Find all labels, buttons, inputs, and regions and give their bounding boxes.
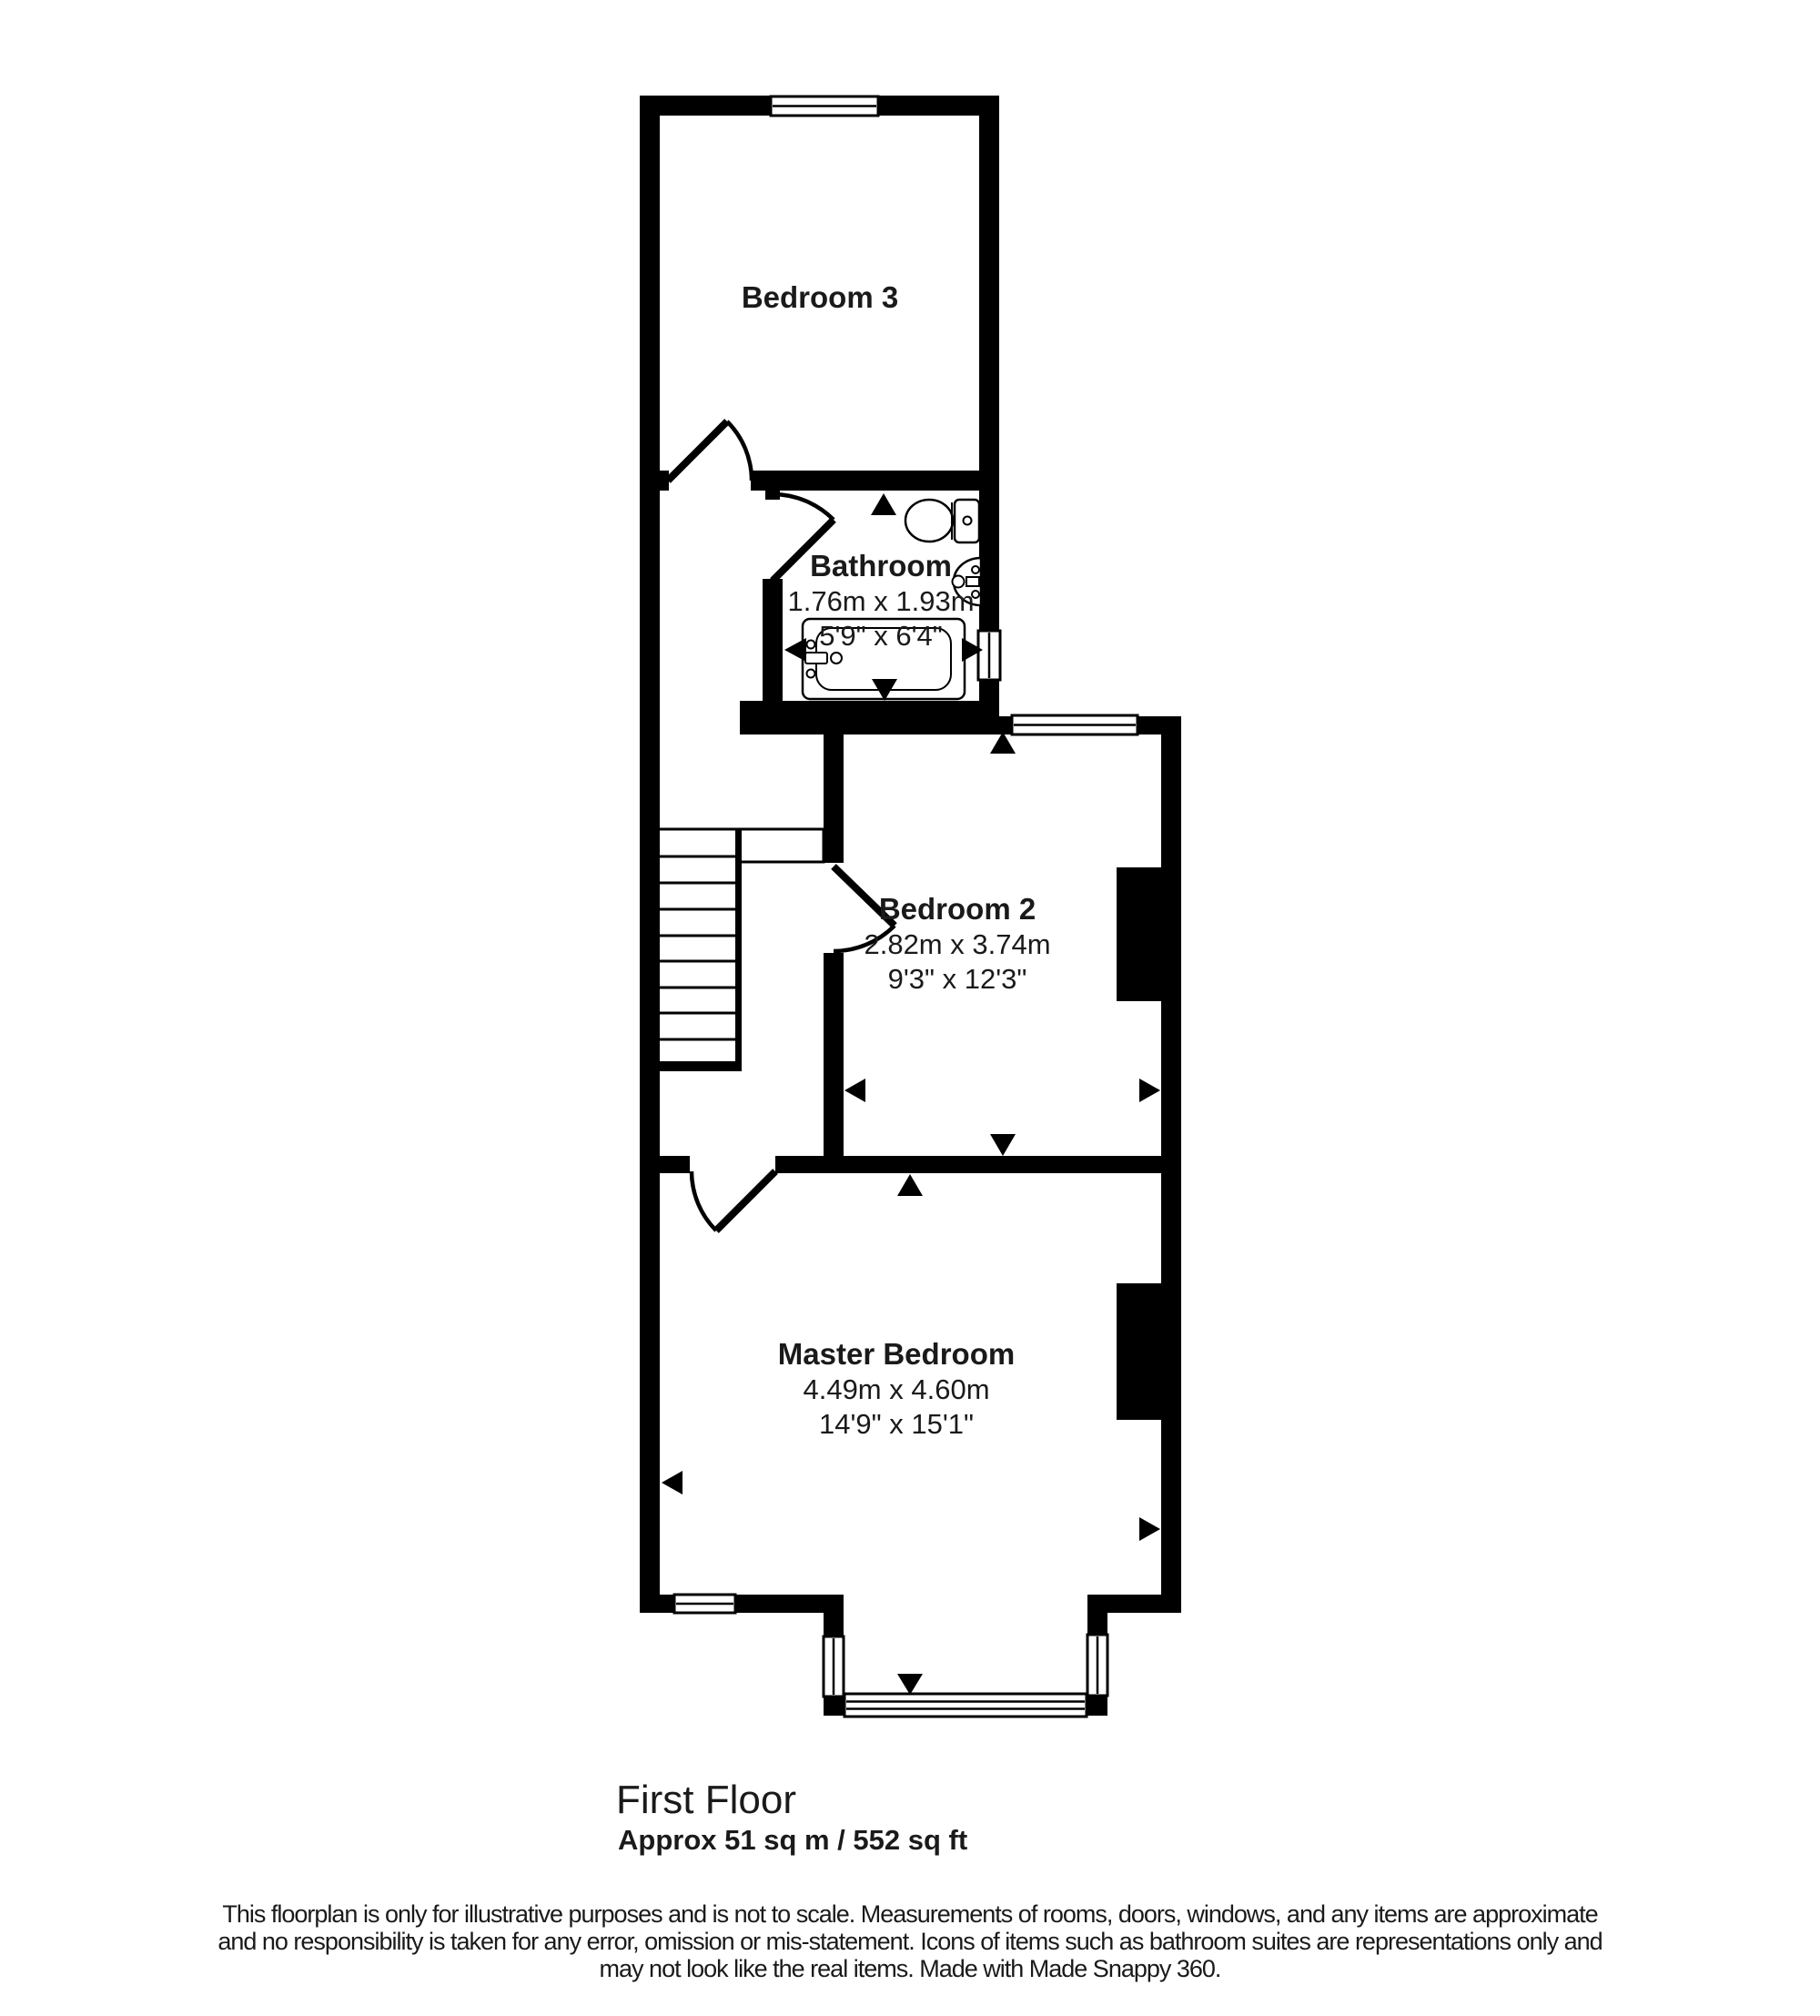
arrow-down-icon <box>897 1674 923 1695</box>
arrow-left-icon <box>844 1079 865 1102</box>
disclaimer-line-3: may not look like the real items. Made w… <box>600 1955 1221 1982</box>
arrow-right-icon <box>1139 1517 1160 1541</box>
bedroom2-dim-imperial: 9'3" x 12'3" <box>888 963 1027 995</box>
arrow-left-icon <box>662 1471 682 1494</box>
master-bedroom-label: Master Bedroom <box>778 1337 1015 1371</box>
arrow-up-icon <box>897 1174 923 1196</box>
disclaimer-line-1: This floorplan is only for illustrative … <box>222 1900 1597 1928</box>
bedroom3-label: Bedroom 3 <box>742 280 898 314</box>
chimney-breast <box>1117 1283 1161 1420</box>
bathroom-dim-imperial: 5'9" x 6'4" <box>819 620 943 652</box>
stair-landing-step <box>738 829 824 862</box>
wall-segment <box>763 579 783 706</box>
wall-segment <box>824 953 844 1156</box>
master-bedroom-dim-metric: 4.49m x 4.60m <box>803 1373 989 1405</box>
bay-right-window <box>1087 1635 1107 1696</box>
arrow-left-icon <box>784 638 806 662</box>
wall-segment <box>640 471 669 491</box>
bedroom2-window <box>1012 715 1137 734</box>
arrow-up-icon <box>871 493 896 515</box>
stair-base <box>660 1061 742 1071</box>
bedroom2-label: Bedroom 2 <box>879 892 1036 926</box>
floorplan-svg: Bedroom 3 Bathroom 1.76m x 1.93m 5'9" x … <box>0 0 1820 2016</box>
floor-title: First Floor <box>616 1778 796 1822</box>
arrow-right-icon <box>1139 1079 1160 1102</box>
bedroom3-window <box>771 96 878 116</box>
bay-front-window <box>844 1694 1087 1717</box>
wall-segment <box>740 701 999 734</box>
wall-segment <box>824 734 844 863</box>
bathroom-window <box>978 631 1000 680</box>
floor-area: Approx 51 sq m / 552 sq ft <box>618 1824 967 1856</box>
bedroom3-door <box>668 421 752 481</box>
floorplan-page: Bedroom 3 Bathroom 1.76m x 1.93m 5'9" x … <box>0 0 1820 2016</box>
wall-segment <box>1087 1595 1181 1613</box>
wall-segment <box>1087 1611 1107 1636</box>
staircase <box>660 829 824 1071</box>
master-side-window <box>674 1595 735 1613</box>
stair-divider <box>735 829 742 1070</box>
disclaimer-line-2: and no responsibility is taken for any e… <box>217 1928 1602 1955</box>
arrow-down-icon <box>990 1134 1016 1156</box>
bay-left-window <box>824 1636 844 1697</box>
master-bedroom-dim-imperial: 14'9" x 15'1" <box>819 1408 974 1440</box>
bathroom-dim-metric: 1.76m x 1.93m <box>787 585 974 617</box>
master-bedroom-door <box>692 1171 775 1231</box>
wall-segment <box>751 471 999 491</box>
chimney-breast <box>1117 867 1161 1001</box>
bedroom2-dim-metric: 2.82m x 3.74m <box>864 928 1050 960</box>
wall-segment <box>775 1156 1181 1173</box>
bathroom-label: Bathroom <box>810 549 952 583</box>
toilet-icon <box>905 500 979 542</box>
wall-segment <box>640 1156 690 1173</box>
wall-segment <box>824 1595 844 1638</box>
wall-segment <box>640 96 660 1613</box>
